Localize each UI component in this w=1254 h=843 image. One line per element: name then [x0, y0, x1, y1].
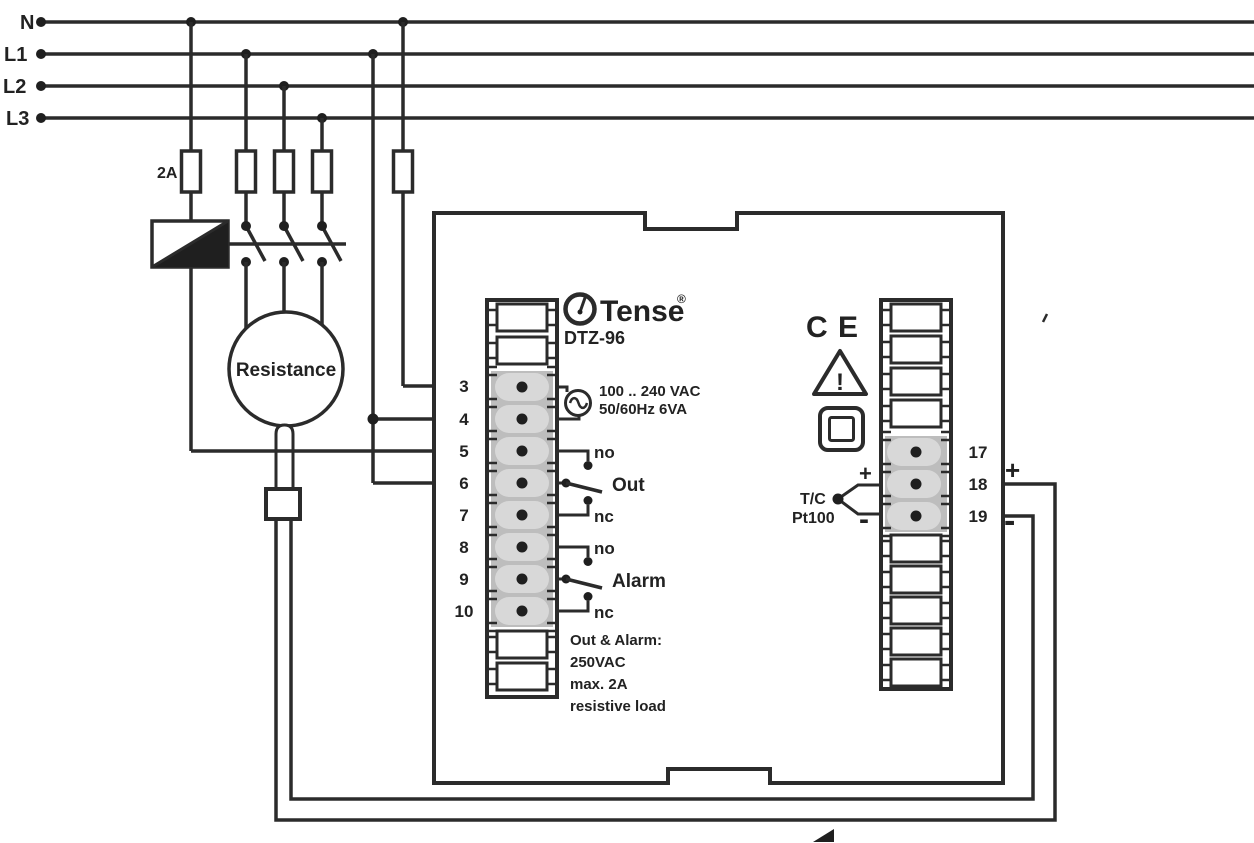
resistance-label: Resistance — [236, 360, 336, 381]
rating-line1: Out & Alarm: — [570, 632, 662, 649]
fuse-l3 — [313, 151, 332, 192]
out-relay-symbol: no Out nc — [557, 443, 645, 526]
contactor — [152, 221, 346, 332]
terminal-4-label: 4 — [459, 410, 469, 429]
probe-stem — [276, 425, 293, 490]
terminal-9-label: 9 — [459, 570, 468, 589]
alarm-no-label: no — [594, 539, 615, 558]
sensor-type-tc: T/C — [800, 491, 826, 508]
contact-rating-text: Out & Alarm: 250VAC max. 2A resistive lo… — [570, 632, 666, 715]
rating-line3: max. 2A — [570, 676, 628, 693]
supply-rating-line2: 50/60Hz 6VA — [599, 401, 687, 418]
bus-start-dots — [36, 17, 46, 123]
out-no-label: no — [594, 443, 615, 462]
terminal-5-label: 5 — [459, 442, 468, 461]
wiring-diagram: N L1 L2 L3 2A — [0, 0, 1254, 843]
l1-branch-junction-dot — [368, 414, 379, 425]
supply-rating-line1: 100 .. 240 VAC — [599, 383, 701, 400]
terminal-10-label: 10 — [455, 602, 474, 621]
sensor-input: T/C Pt100 + - — [792, 461, 883, 536]
temperature-probe — [266, 425, 300, 519]
ce-mark: C E — [806, 311, 859, 344]
sensor-type-pt100: Pt100 — [792, 510, 835, 527]
bus-label-n: N — [20, 12, 34, 34]
out-nc-label: nc — [594, 507, 614, 526]
class2-inner-square — [830, 418, 854, 441]
warning-exclamation: ! — [836, 369, 844, 396]
wiring-diagram-page: N L1 L2 L3 2A — [0, 0, 1254, 843]
right-terminal-numbers: 17 18 19 — [969, 443, 988, 526]
fuse-l1 — [237, 151, 256, 192]
certification-icons: C E ! — [806, 311, 866, 450]
terminal-19-label: 19 — [969, 507, 988, 526]
resistance-load: Resistance — [229, 312, 343, 426]
terminal-6-label: 6 — [459, 474, 468, 493]
left-terminal-strip: 3 4 5 6 7 8 9 10 — [455, 300, 557, 697]
bus-label-l1: L1 — [4, 44, 27, 66]
terminal-17-label: 17 — [969, 443, 988, 462]
alarm-relay-symbol: no Alarm nc — [557, 539, 666, 622]
terminal-18-label: 18 — [969, 475, 988, 494]
rating-line2: 250VAC — [570, 654, 626, 671]
rating-line4: resistive load — [570, 698, 666, 715]
out-relay-blade — [566, 483, 602, 492]
terminal-7-label: 7 — [459, 506, 468, 525]
fuse-n2 — [394, 151, 413, 192]
class2-insulation-icon — [820, 408, 863, 450]
fuse-2a — [182, 151, 201, 192]
external-plus-sign: + — [1005, 455, 1020, 485]
bottom-arrow-mark — [813, 829, 834, 842]
left-terminal-numbers: 3 4 5 6 7 8 9 10 — [455, 377, 474, 621]
brand-logo: Tense ® DTZ-96 — [564, 292, 686, 348]
brand-gauge-needle — [580, 295, 586, 312]
terminal-3-label: 3 — [459, 377, 468, 396]
brand-name: Tense — [600, 295, 684, 328]
right-strip-terminal-cells — [887, 438, 941, 530]
alarm-nc-label: nc — [594, 603, 614, 622]
registered-mark: ® — [677, 292, 686, 306]
bus-label-l3: L3 — [6, 108, 29, 130]
external-minus-sign: - — [1004, 502, 1015, 540]
sensor-fork-dot — [833, 494, 844, 505]
probe-sensor-box — [266, 489, 300, 519]
model-label: DTZ-96 — [564, 328, 625, 348]
alarm-relay-blade — [566, 579, 602, 588]
sensor-plus-sign: + — [859, 461, 872, 486]
out-label: Out — [612, 475, 645, 496]
bus-label-l2: L2 — [3, 76, 26, 98]
fuse-rating-label: 2A — [157, 165, 178, 182]
sensor-minus-sign: - — [859, 503, 869, 536]
fuse-l2 — [275, 151, 294, 192]
alarm-label: Alarm — [612, 571, 666, 592]
bus-lines — [38, 22, 1254, 118]
terminal-8-label: 8 — [459, 538, 468, 557]
power-input-symbol: 100 .. 240 VAC 50/60Hz 6VA — [557, 383, 701, 419]
stray-tick-mark — [1043, 314, 1047, 322]
right-terminal-strip: 17 18 19 — [881, 300, 987, 689]
